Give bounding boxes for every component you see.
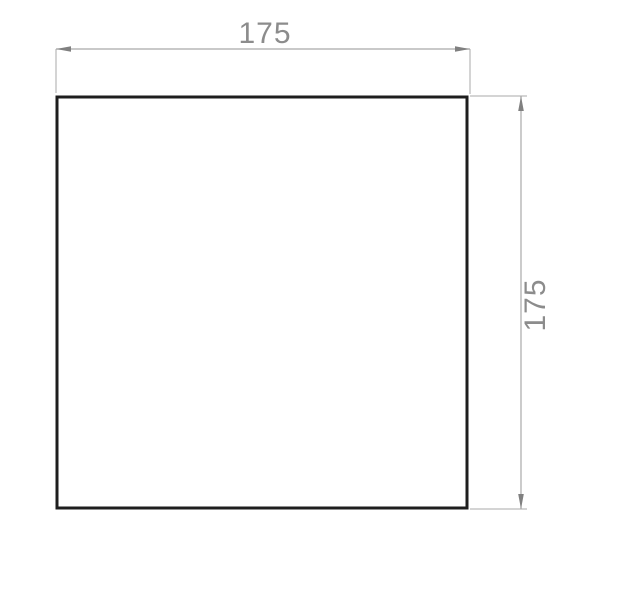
horizontal-dimension: 175 — [56, 17, 470, 94]
vertical-dimension: 175 — [470, 96, 552, 509]
arrow-up-icon — [518, 96, 524, 111]
drawing-svg: 175 175 — [0, 0, 622, 600]
square-outline — [57, 97, 467, 508]
arrow-right-icon — [455, 46, 470, 52]
technical-drawing: 175 175 — [0, 0, 622, 600]
arrow-left-icon — [56, 46, 71, 52]
height-dimension-label: 175 — [519, 278, 552, 331]
arrow-down-icon — [518, 494, 524, 509]
width-dimension-label: 175 — [238, 17, 291, 50]
